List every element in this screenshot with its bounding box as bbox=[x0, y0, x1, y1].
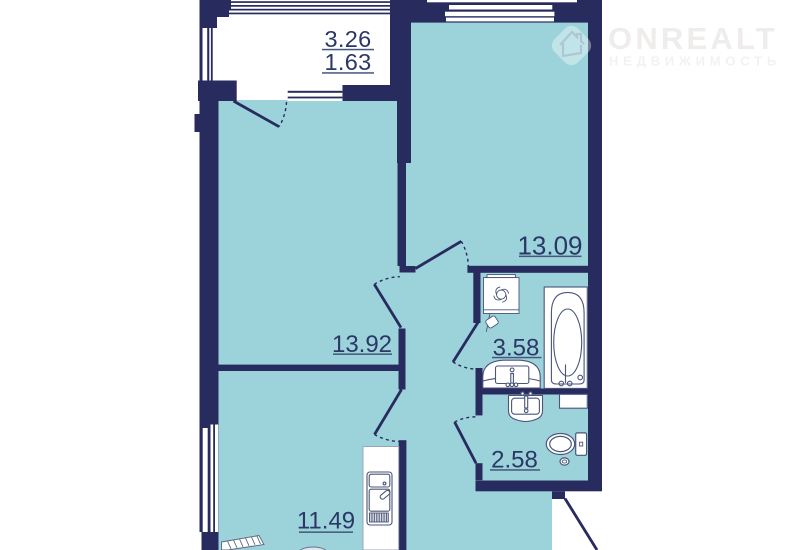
svg-text:11.49: 11.49 bbox=[297, 508, 355, 535]
svg-text:НЕДВИЖИМОСТЬ: НЕДВИЖИМОСТЬ bbox=[609, 54, 781, 69]
svg-text:ONREALT: ONREALT bbox=[608, 21, 778, 56]
svg-text:1.63: 1.63 bbox=[325, 49, 372, 75]
